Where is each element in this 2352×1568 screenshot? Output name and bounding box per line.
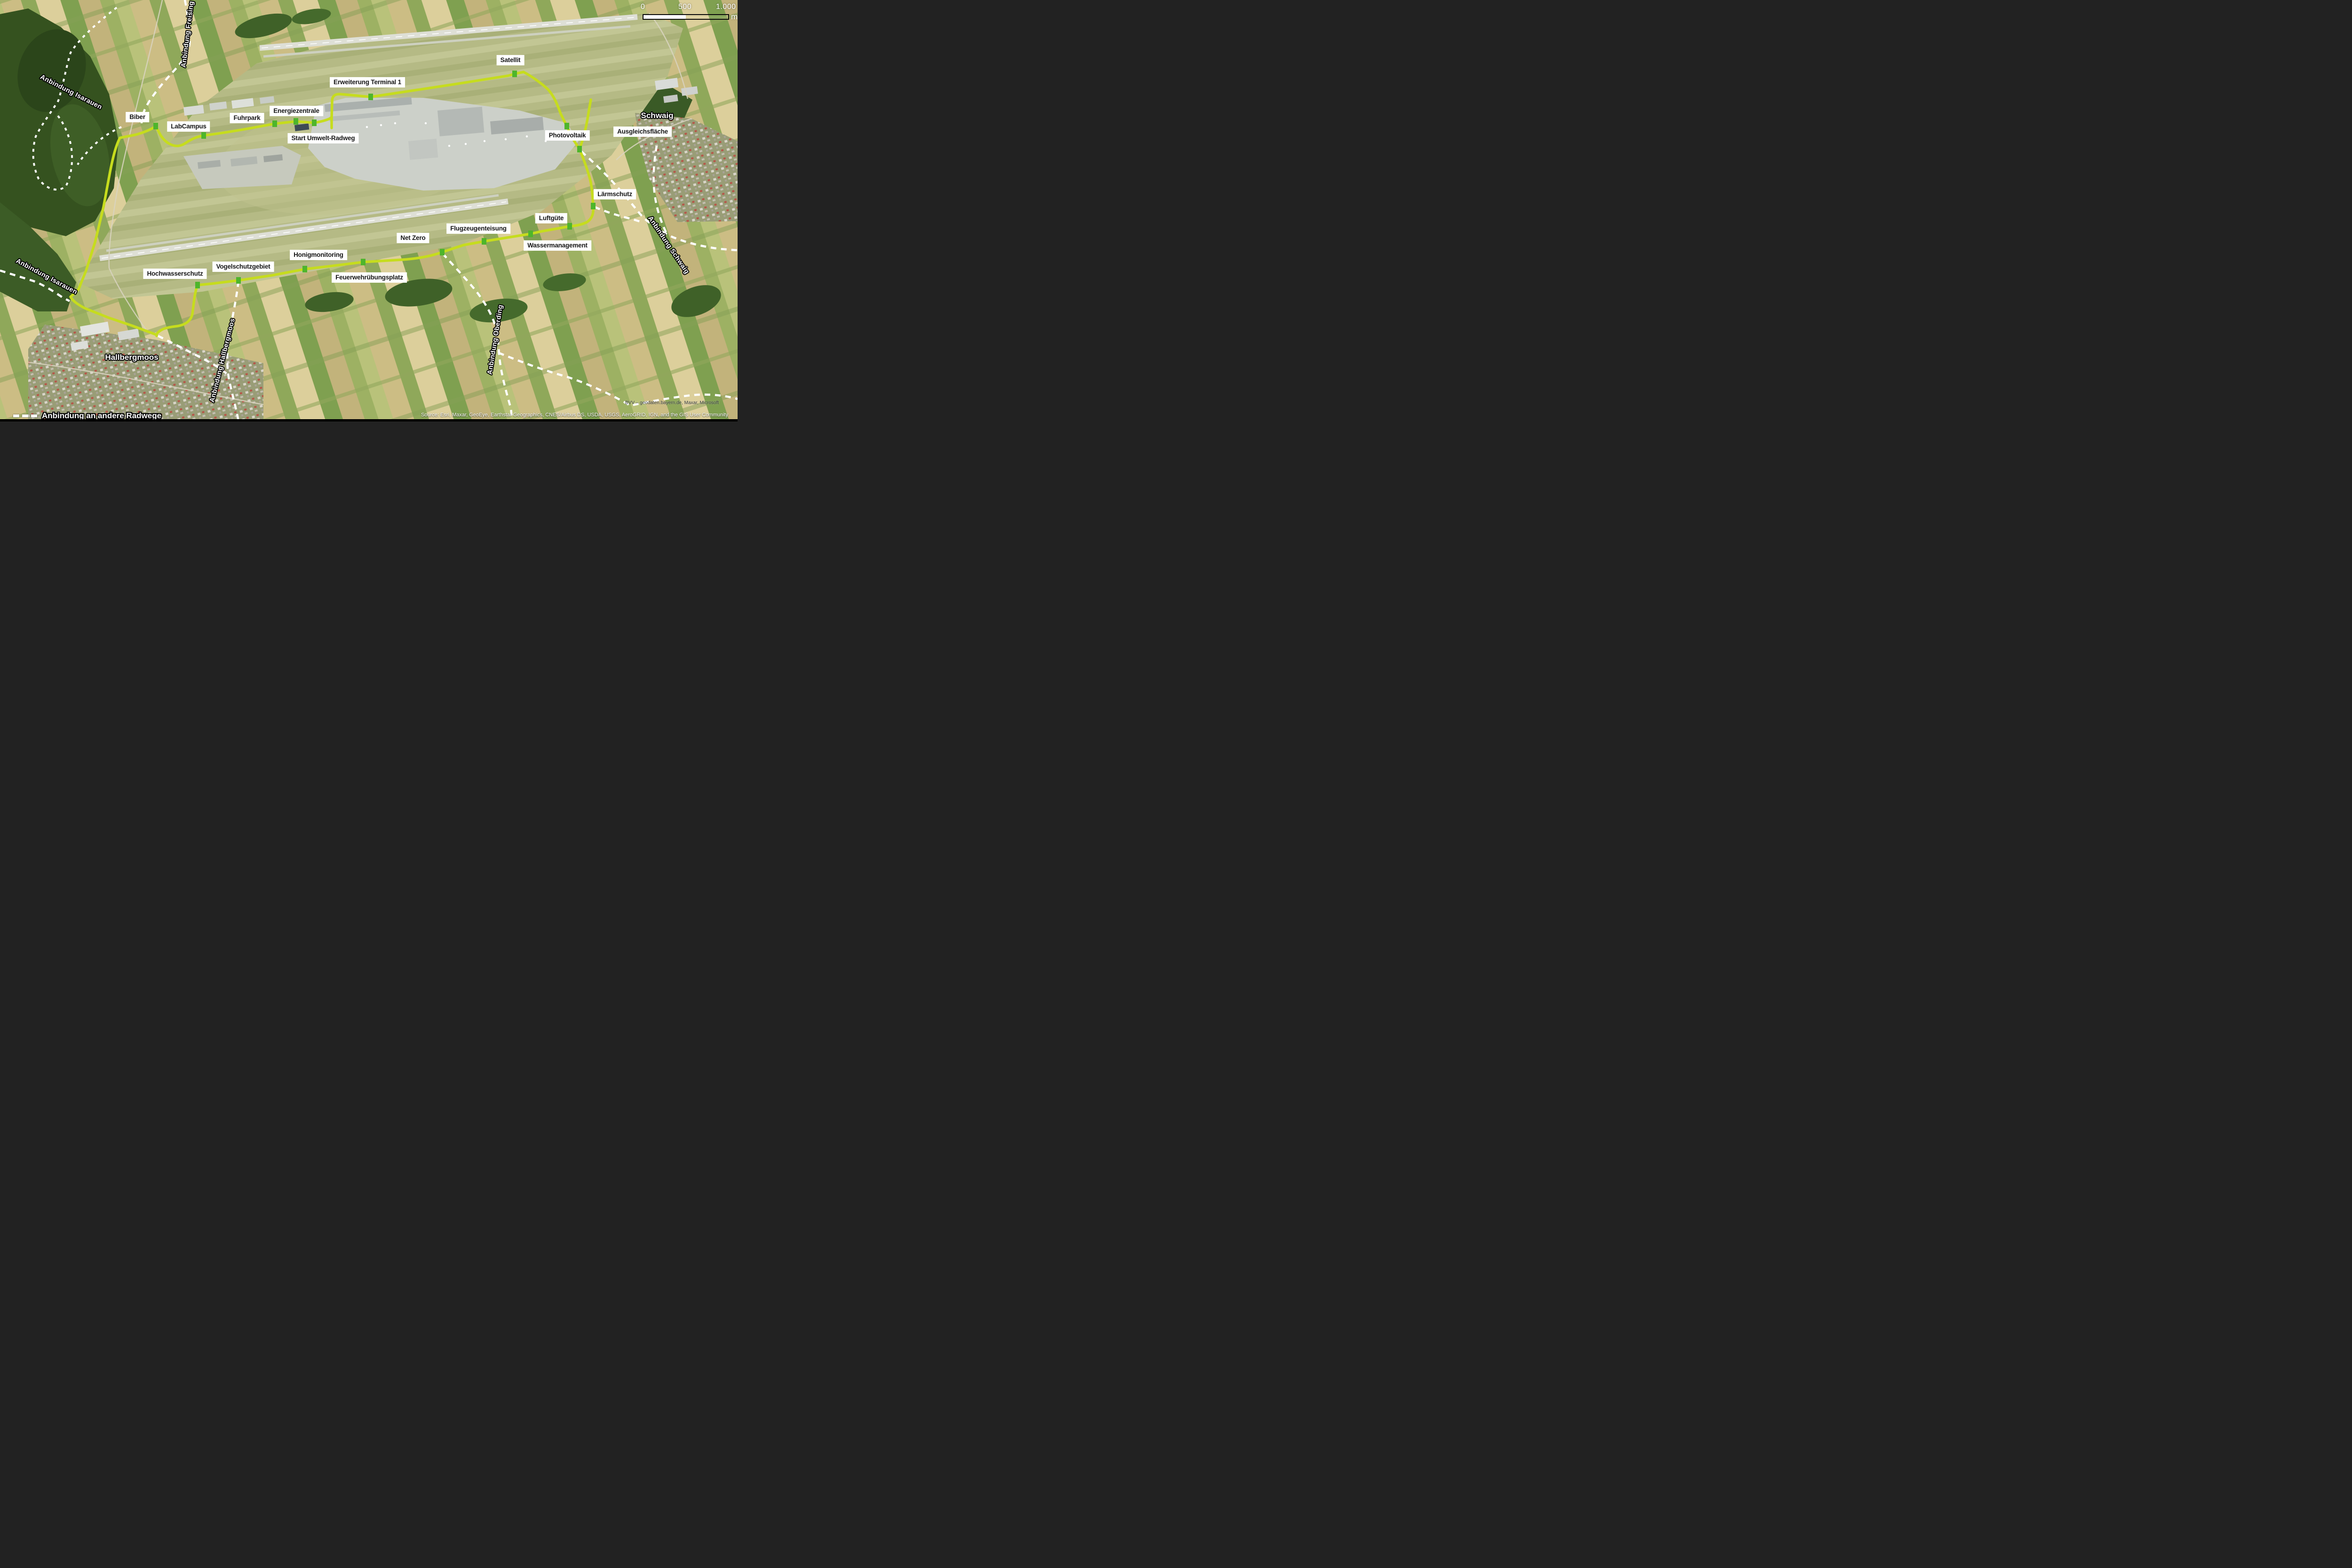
station-marker-erweiterung-terminal-1: [368, 94, 373, 100]
place-label-schwaig: Schwaig: [641, 111, 674, 120]
station-label-honigmonitoring: Honigmonitoring: [290, 250, 347, 260]
station-label-luftguete: Luftgüte: [535, 213, 567, 223]
scale-tick-0: 0: [641, 3, 645, 11]
airport-bike-route-map: Biber LabCampus Fuhrpark Energiezentrale…: [0, 0, 738, 422]
station-label-start-umwelt-radweg: Start Umwelt-Radweg: [288, 133, 359, 143]
station-marker-satellit: [512, 71, 517, 77]
station-label-fuhrpark: Fuhrpark: [230, 113, 264, 123]
place-label-hallbergmoos: Hallbergmoos: [105, 353, 158, 362]
station-label-labcampus: LabCampus: [167, 121, 210, 132]
station-label-hochwasserschutz: Hochwasserschutz: [143, 269, 207, 279]
station-marker-start: [312, 119, 317, 126]
station-label-feuerwehruebungsplatz: Feuerwehrübungsplatz: [332, 272, 407, 283]
station-marker-feuerwehruebungsplatz: [361, 259, 366, 265]
scale-tick-500: 500: [678, 3, 691, 11]
station-marker-energiezentrale: [294, 118, 298, 125]
station-marker-laermschutz: [591, 203, 596, 209]
station-label-satellit: Satellit: [497, 55, 524, 65]
station-marker-vogelschutzgebiet: [236, 277, 241, 284]
station-marker-honigmonitoring: [302, 266, 307, 272]
station-label-vogelschutzgebiet: Vogelschutzgebiet: [213, 262, 274, 272]
scale-bar: 0 500 1.000 m: [639, 3, 736, 21]
dashed-line-sample-icon: [13, 414, 37, 417]
station-marker-hochwasserschutz: [195, 282, 200, 288]
station-marker-flugzeugenteisung: [482, 238, 486, 245]
station-marker-fuhrpark: [272, 120, 277, 127]
station-label-net-zero: Net Zero: [397, 233, 429, 243]
scale-tick-1000: 1.000: [716, 3, 736, 11]
station-label-wassermanagement: Wassermanagement: [524, 240, 591, 251]
scale-bar-graphic: [643, 14, 729, 20]
bottom-border-strip: [0, 419, 738, 422]
source-attribution: Source: Esri, Maxar, GeoEye, Earthstar G…: [421, 412, 728, 418]
station-label-photovoltaik: Photovoltaik: [545, 130, 590, 141]
station-marker-biber: [153, 123, 158, 129]
station-label-laermschutz: Lärmschutz: [594, 189, 636, 199]
station-label-biber: Biber: [126, 112, 149, 122]
station-label-ausgleichsflaeche: Ausgleichsfläche: [613, 127, 672, 137]
scale-unit: m: [731, 12, 738, 22]
station-label-energiezentrale: Energiezentrale: [270, 106, 323, 116]
station-marker-ausgleichsflaeche: [577, 146, 582, 152]
station-label-flugzeugenteisung: Flugzeugenteisung: [446, 223, 510, 234]
station-marker-wassermanagement: [528, 231, 533, 237]
imagery-attribution: BVV – geodaten.bayern.de, Maxar, Microso…: [625, 400, 719, 406]
station-marker-luftguete: [567, 223, 572, 230]
station-marker-photovoltaik: [564, 123, 569, 129]
station-marker-labcampus: [201, 132, 206, 139]
station-marker-net-zero: [440, 249, 445, 255]
station-label-erweiterung-terminal-1: Erweiterung Terminal 1: [330, 77, 405, 88]
